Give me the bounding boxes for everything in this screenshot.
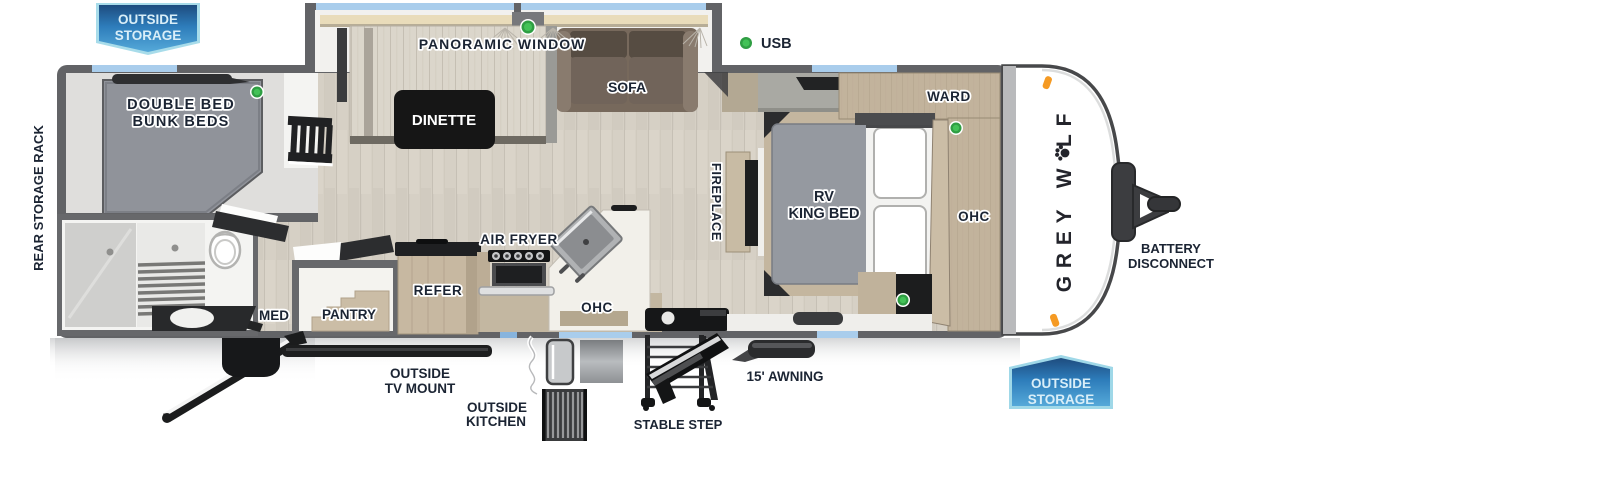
svg-text:DINETTE: DINETTE (412, 112, 476, 129)
svg-text:MED: MED (259, 308, 289, 323)
svg-text:SOFA: SOFA (608, 79, 646, 95)
svg-text:PANORAMIC WINDOW: PANORAMIC WINDOW (419, 36, 586, 52)
svg-text:WARD: WARD (927, 89, 971, 104)
svg-text:15' AWNING: 15' AWNING (747, 369, 824, 384)
svg-text:DISCONNECT: DISCONNECT (1128, 256, 1214, 271)
svg-text:AIR FRYER: AIR FRYER (480, 232, 558, 247)
svg-text:STABLE STEP: STABLE STEP (634, 417, 723, 432)
svg-text:DOUBLE BED: DOUBLE BED (127, 97, 235, 113)
svg-text:OHC: OHC (958, 209, 990, 224)
svg-text:RV: RV (814, 189, 834, 205)
svg-text:GREY W LF: GREY W LF (1053, 106, 1076, 292)
svg-text:OUTSIDE: OUTSIDE (390, 366, 450, 381)
svg-text:OUTSIDE: OUTSIDE (467, 400, 527, 415)
svg-text:STORAGE: STORAGE (115, 28, 182, 43)
svg-text:OUTSIDE: OUTSIDE (118, 12, 178, 27)
svg-text:BUNK BEDS: BUNK BEDS (133, 114, 230, 130)
svg-text:TV MOUNT: TV MOUNT (385, 381, 456, 396)
svg-text:REFER: REFER (414, 283, 463, 298)
svg-text:OHC: OHC (581, 300, 613, 315)
svg-text:OUTSIDE: OUTSIDE (1031, 376, 1091, 391)
svg-text:KITCHEN: KITCHEN (466, 414, 526, 429)
svg-text:REAR STORAGE RACK: REAR STORAGE RACK (31, 125, 46, 271)
svg-text:PANTRY: PANTRY (322, 307, 376, 322)
svg-text:FIREPLACE: FIREPLACE (709, 163, 724, 241)
svg-text:USB: USB (761, 36, 792, 52)
svg-text:STORAGE: STORAGE (1028, 392, 1095, 407)
svg-text:BATTERY: BATTERY (1141, 241, 1201, 256)
svg-text:KING BED: KING BED (789, 206, 860, 222)
